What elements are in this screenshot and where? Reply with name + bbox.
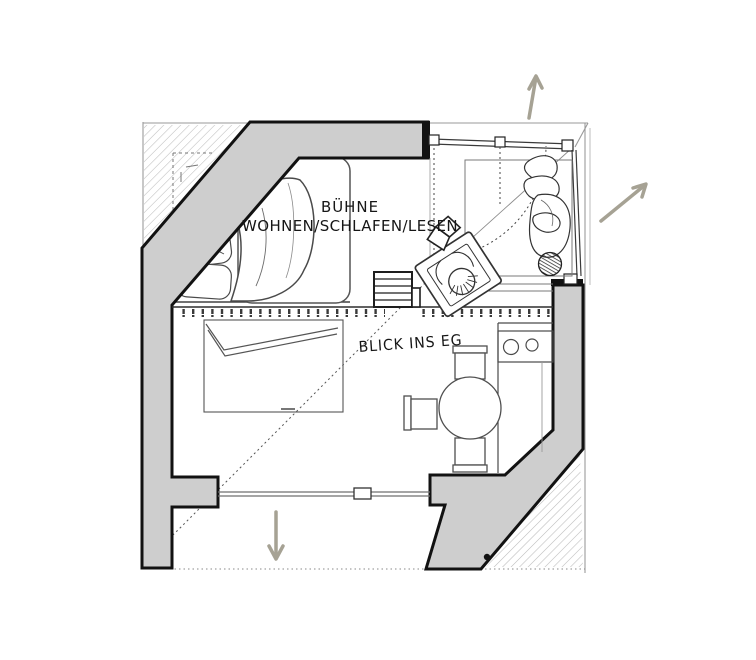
railing (172, 307, 553, 317)
railing-balusters (179, 309, 385, 317)
chair-south (453, 438, 487, 472)
chair-north (453, 346, 487, 379)
glazing-post (495, 137, 505, 147)
wall-door-stop-dot (484, 554, 490, 560)
dining-set (404, 346, 501, 472)
direction-arrow-up (529, 76, 542, 118)
railing-balusters (419, 309, 551, 317)
stair-handrail-below-line2 (208, 330, 337, 356)
floor-plan-canvas: BÜHNE WOHNEN/SCHLAFEN/LESEN BLICK INS EG (0, 0, 756, 660)
direction-arrow-down (269, 512, 283, 559)
void-opening (204, 320, 343, 412)
label-buehne: BÜHNE (321, 197, 379, 216)
label-blick-ins-eg: BLICK INS EG (358, 331, 463, 356)
cooktop-burner (526, 339, 538, 351)
label-wohnen-schlafen-lesen: WOHNEN/SCHLAFEN/LESEN (242, 217, 458, 235)
head-hatched (539, 253, 562, 276)
cooktop (498, 331, 553, 362)
chair-west (404, 396, 437, 430)
stairs (374, 272, 420, 307)
window-south (218, 488, 430, 499)
glazing-post (562, 140, 573, 151)
lounging-person (524, 156, 570, 276)
stair-handrail-below-line1 (206, 324, 338, 350)
corner-diagonal-line (575, 123, 588, 147)
dining-table (439, 377, 501, 439)
direction-arrow-northeast (601, 184, 646, 221)
floor-plan-page: BÜHNE WOHNEN/SCHLAFEN/LESEN BLICK INS EG (0, 0, 756, 660)
cooktop-burner (504, 340, 519, 355)
window-mullion (354, 488, 371, 499)
stair-newel (412, 288, 420, 307)
glazing-post (429, 135, 439, 145)
glazing-north (429, 135, 573, 151)
